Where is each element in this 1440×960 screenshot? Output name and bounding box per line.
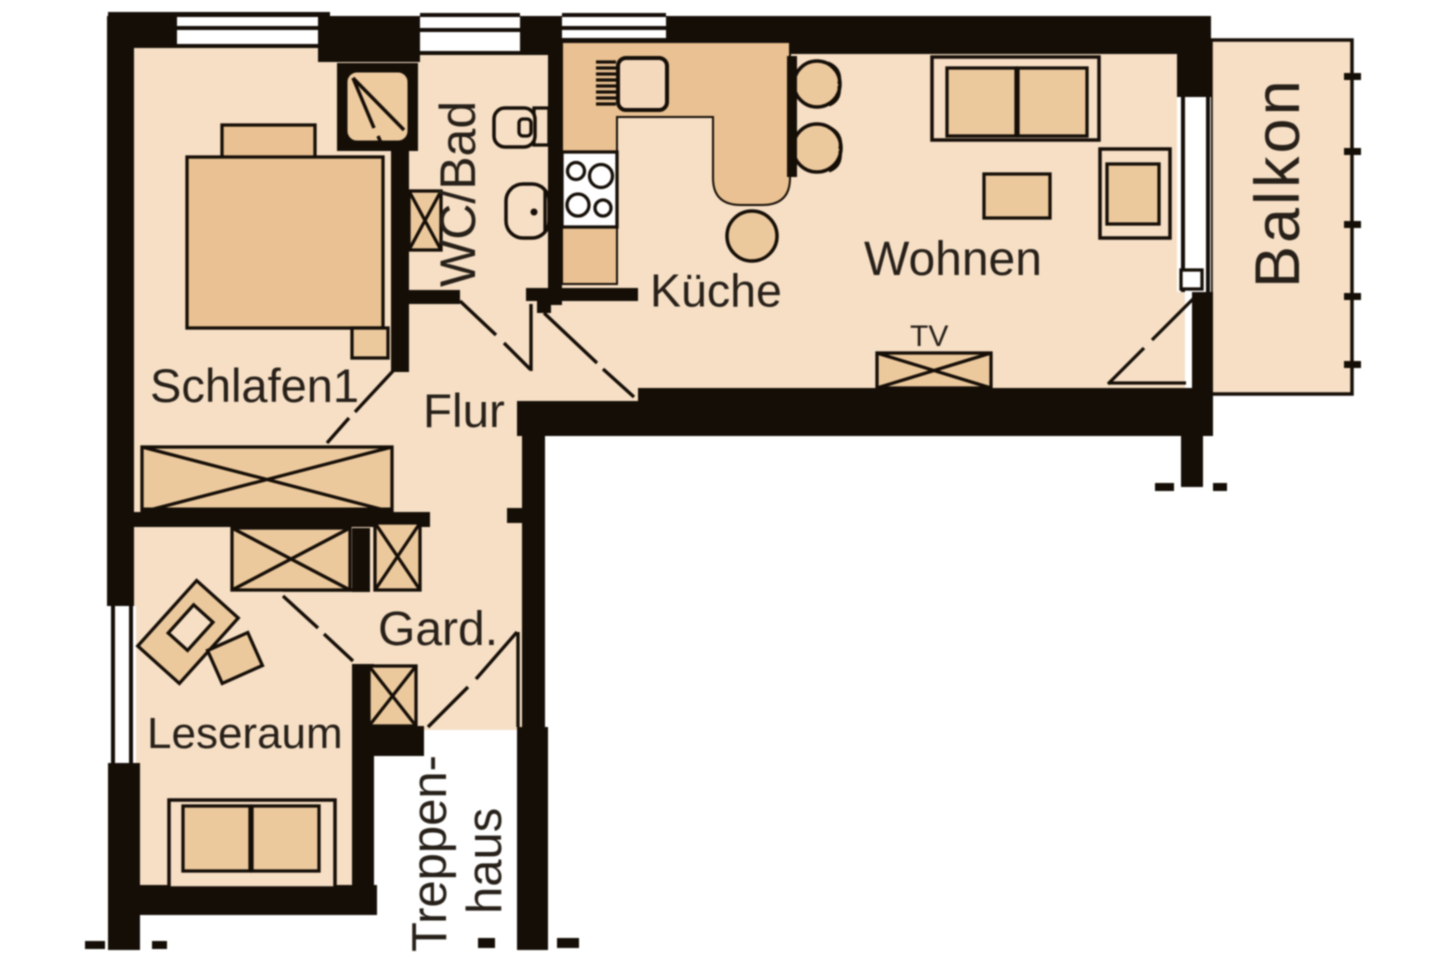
svg-text:Leseraum: Leseraum [147, 709, 343, 758]
svg-text:Treppen-: Treppen- [403, 755, 457, 952]
svg-text:WC/Bad: WC/Bad [430, 101, 486, 287]
svg-text:Schlafen1: Schlafen1 [150, 359, 359, 412]
svg-text:Flur: Flur [423, 385, 505, 438]
svg-text:haus: haus [458, 808, 512, 914]
svg-text:Gard.: Gard. [378, 603, 498, 656]
svg-text:Balkon: Balkon [1243, 77, 1313, 288]
svg-text:TV: TV [910, 320, 948, 353]
svg-text:Wohnen: Wohnen [864, 233, 1042, 286]
svg-text:Küche: Küche [650, 265, 782, 317]
